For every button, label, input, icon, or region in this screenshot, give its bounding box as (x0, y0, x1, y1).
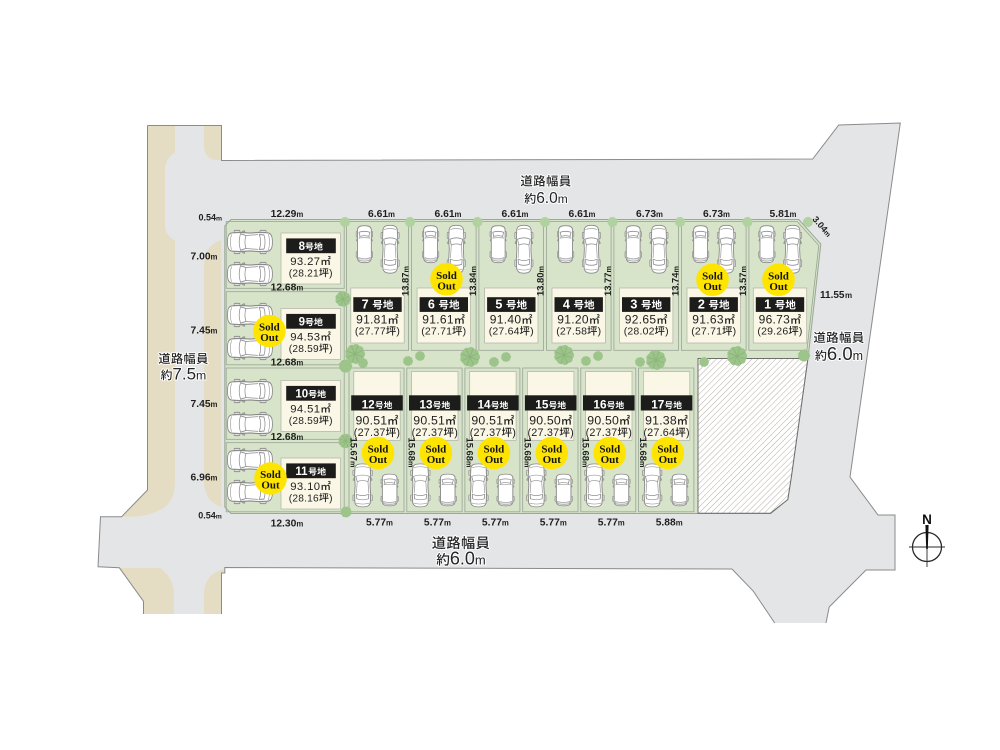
svg-text:12: 12 (362, 397, 376, 411)
svg-text:m: m (349, 461, 358, 468)
svg-text:m: m (580, 461, 589, 468)
svg-text:m: m (216, 514, 222, 521)
svg-text:m: m (676, 519, 683, 528)
svg-text:m: m (790, 210, 797, 219)
svg-text:92.65: 92.65 (625, 313, 657, 327)
svg-text:m: m (196, 368, 206, 382)
svg-text:6.61: 6.61 (569, 209, 589, 220)
svg-text:13.57: 13.57 (737, 273, 748, 296)
svg-text:(27.71: (27.71 (691, 326, 722, 338)
svg-text:96.73: 96.73 (759, 313, 791, 327)
svg-text:m: m (296, 210, 303, 219)
svg-text:93.10: 93.10 (290, 481, 320, 493)
svg-text:): ) (329, 416, 333, 427)
svg-text:m: m (211, 474, 218, 483)
svg-text:6.61: 6.61 (368, 209, 388, 220)
svg-text:90.50: 90.50 (587, 414, 619, 428)
svg-text:m: m (296, 520, 303, 529)
svg-text:m: m (216, 216, 222, 223)
svg-text:5.77: 5.77 (424, 518, 444, 529)
svg-text:m: m (672, 266, 681, 273)
svg-text:m: m (656, 210, 663, 219)
svg-text:90.50: 90.50 (529, 414, 561, 428)
svg-text:Out: Out (601, 454, 620, 466)
svg-text:14: 14 (478, 397, 492, 411)
svg-text:4: 4 (563, 298, 570, 312)
svg-text:(28.02: (28.02 (624, 326, 655, 338)
svg-text:90.51: 90.51 (471, 414, 503, 428)
svg-text:6.61: 6.61 (502, 209, 522, 220)
svg-text:m: m (211, 253, 218, 262)
svg-text:93.27: 93.27 (290, 256, 320, 268)
svg-text:91.38: 91.38 (645, 414, 677, 428)
svg-text:5.77: 5.77 (366, 518, 386, 529)
svg-text:(27.71: (27.71 (421, 326, 452, 338)
svg-text:12.68: 12.68 (271, 432, 297, 443)
svg-text:m: m (465, 461, 474, 468)
svg-text:10: 10 (295, 388, 308, 400)
svg-text:12.68: 12.68 (271, 358, 297, 369)
svg-text:15.68: 15.68 (580, 438, 591, 461)
svg-text:11.55: 11.55 (820, 290, 845, 301)
svg-text:(28.59: (28.59 (289, 344, 319, 355)
svg-text:15: 15 (535, 397, 549, 411)
svg-text:Out: Out (769, 281, 788, 293)
svg-text:7.00: 7.00 (191, 252, 211, 263)
svg-text:N: N (922, 512, 932, 527)
svg-text:(27.58: (27.58 (556, 326, 587, 338)
svg-text:5.77: 5.77 (540, 518, 560, 529)
svg-text:2: 2 (698, 298, 705, 312)
svg-text:9: 9 (299, 316, 305, 328)
svg-text:m: m (604, 266, 613, 273)
svg-text:91.61: 91.61 (422, 313, 454, 327)
svg-text:15.68: 15.68 (638, 438, 649, 461)
svg-text:15.68: 15.68 (522, 438, 533, 461)
svg-text:5.77: 5.77 (598, 518, 618, 529)
svg-text:94.51: 94.51 (290, 404, 320, 416)
svg-text:): ) (530, 326, 534, 338)
svg-text:m: m (455, 210, 462, 219)
svg-text:): ) (733, 326, 737, 338)
svg-text:Out: Out (427, 454, 446, 466)
svg-text:m: m (296, 284, 303, 293)
svg-text:Out: Out (260, 332, 279, 344)
svg-text:16: 16 (593, 397, 607, 411)
svg-text:m: m (469, 266, 478, 273)
svg-text:91.63: 91.63 (692, 313, 724, 327)
svg-text:(29.26: (29.26 (757, 326, 788, 338)
svg-text:(28.16: (28.16 (289, 493, 319, 504)
svg-text:13.87: 13.87 (400, 273, 411, 296)
svg-text:): ) (628, 427, 632, 439)
svg-text:0.54: 0.54 (198, 511, 216, 521)
svg-text:m: m (618, 519, 625, 528)
svg-text:Out: Out (437, 280, 456, 292)
svg-text:): ) (686, 427, 690, 439)
svg-text:6.96: 6.96 (191, 473, 211, 484)
svg-text:(28.21: (28.21 (289, 268, 319, 279)
svg-text:6.0: 6.0 (450, 549, 475, 569)
svg-text:m: m (296, 433, 303, 442)
svg-text:m: m (388, 210, 395, 219)
svg-text:8: 8 (299, 241, 306, 253)
svg-text:7: 7 (362, 298, 369, 312)
svg-text:13.84: 13.84 (467, 272, 478, 296)
svg-text:12.30: 12.30 (271, 519, 297, 530)
svg-text:6.0: 6.0 (536, 190, 558, 207)
svg-text:Out: Out (261, 480, 280, 492)
svg-text:): ) (329, 344, 333, 355)
svg-text:m: m (386, 519, 393, 528)
svg-text:m: m (502, 519, 509, 528)
svg-text:13.74: 13.74 (670, 272, 681, 296)
svg-text:11: 11 (295, 466, 308, 478)
svg-text:5: 5 (495, 298, 502, 312)
svg-text:6.73: 6.73 (703, 209, 723, 220)
svg-text:): ) (598, 326, 602, 338)
svg-text:): ) (799, 326, 803, 338)
svg-text:): ) (512, 427, 516, 439)
svg-text:m: m (560, 519, 567, 528)
svg-text:m: m (475, 553, 486, 568)
svg-text:): ) (329, 493, 333, 504)
svg-text:6.0: 6.0 (827, 343, 853, 364)
svg-text:91.40: 91.40 (490, 313, 522, 327)
svg-text:Out: Out (369, 454, 388, 466)
svg-text:0.54: 0.54 (199, 213, 217, 223)
svg-text:m: m (589, 210, 596, 219)
svg-text:m: m (845, 291, 852, 300)
svg-text:m: m (296, 359, 303, 368)
svg-text:m: m (522, 210, 529, 219)
svg-text:1: 1 (764, 298, 771, 312)
svg-text:6.73: 6.73 (636, 209, 656, 220)
svg-text:7.5: 7.5 (172, 364, 196, 383)
svg-text:17: 17 (651, 397, 665, 411)
svg-text:m: m (638, 461, 647, 468)
svg-text:m: m (402, 266, 411, 273)
svg-text:): ) (396, 326, 400, 338)
svg-text:): ) (463, 326, 467, 338)
svg-text:90.51: 90.51 (356, 414, 388, 428)
svg-text:5.77: 5.77 (482, 518, 502, 529)
svg-text:5.81: 5.81 (770, 209, 790, 220)
svg-text:m: m (444, 519, 451, 528)
svg-text:m: m (558, 192, 568, 206)
svg-text:3: 3 (630, 298, 637, 312)
svg-text:Out: Out (659, 454, 678, 466)
svg-text:7.45: 7.45 (191, 399, 211, 410)
svg-text:90.51: 90.51 (413, 414, 445, 428)
svg-text:m: m (739, 266, 748, 273)
svg-text:Out: Out (543, 454, 562, 466)
svg-text:): ) (665, 326, 669, 338)
svg-text:7.45: 7.45 (191, 326, 211, 337)
svg-text:m: m (211, 400, 218, 409)
svg-text:15.68: 15.68 (465, 438, 476, 461)
svg-text:(27.64: (27.64 (489, 326, 520, 338)
svg-text:m: m (522, 461, 531, 468)
svg-text:94.53: 94.53 (290, 332, 320, 344)
svg-text:6: 6 (428, 298, 435, 312)
svg-text:91.20: 91.20 (557, 313, 589, 327)
svg-text:m: m (211, 327, 218, 336)
svg-text:5.88: 5.88 (656, 518, 676, 529)
svg-text:): ) (454, 427, 458, 439)
svg-text:15.67: 15.67 (349, 438, 360, 461)
svg-text:(27.77: (27.77 (355, 326, 386, 338)
svg-text:12.29: 12.29 (271, 209, 297, 220)
svg-text:91.81: 91.81 (356, 313, 388, 327)
svg-text:Out: Out (485, 454, 504, 466)
svg-text:m: m (853, 349, 863, 363)
svg-text:): ) (396, 427, 400, 439)
svg-text:(28.59: (28.59 (289, 416, 319, 427)
svg-text:): ) (329, 268, 333, 279)
svg-text:m: m (723, 210, 730, 219)
svg-text:m: m (406, 461, 415, 468)
svg-text:m: m (537, 266, 546, 273)
svg-text:Out: Out (703, 281, 722, 293)
svg-text:6.61: 6.61 (435, 209, 455, 220)
svg-text:): ) (570, 427, 574, 439)
svg-text:12.68: 12.68 (271, 283, 297, 294)
svg-text:13.77: 13.77 (602, 273, 613, 296)
svg-text:15.68: 15.68 (406, 438, 417, 461)
svg-text:13.80: 13.80 (535, 273, 546, 296)
svg-text:13: 13 (419, 397, 433, 411)
